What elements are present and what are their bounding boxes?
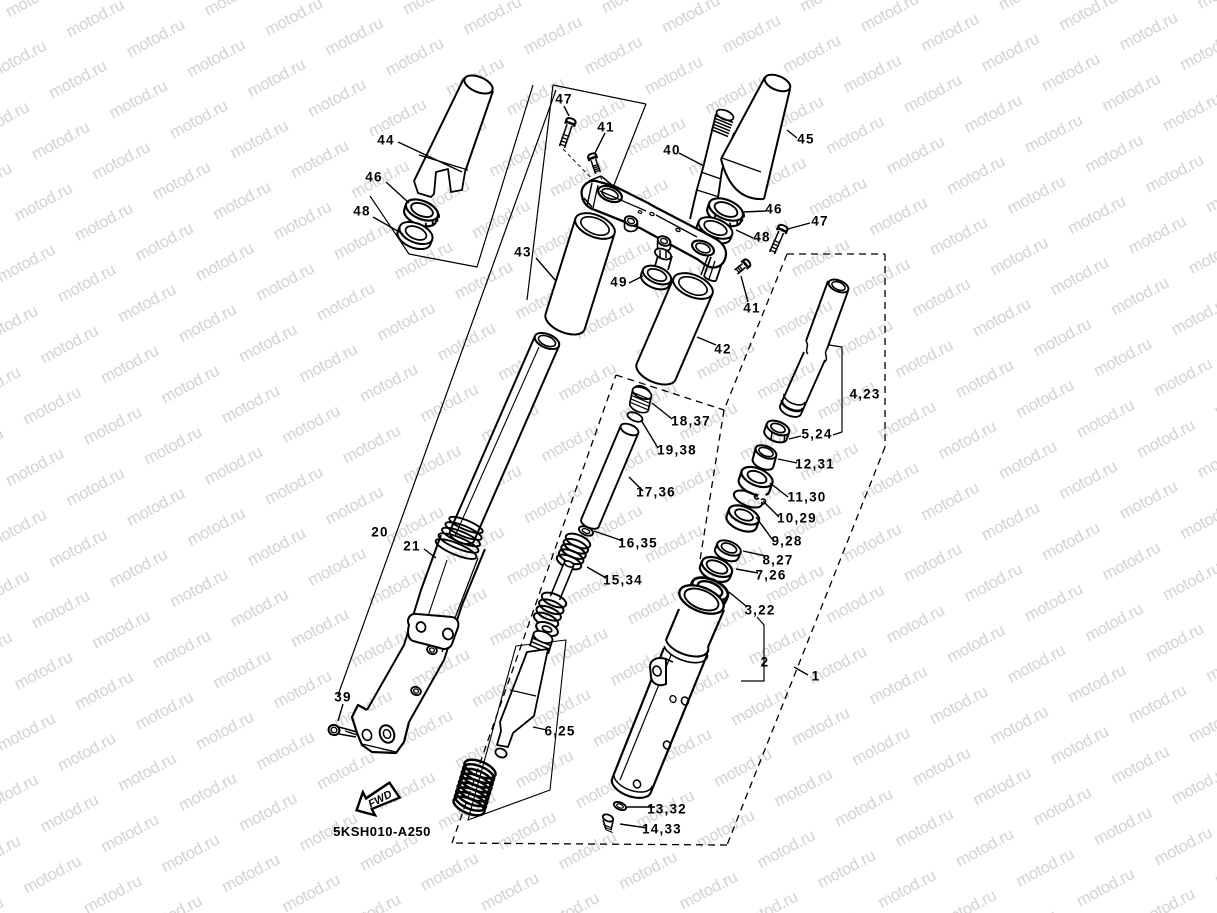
svg-text:47: 47 (555, 92, 572, 107)
svg-text:5,24: 5,24 (801, 427, 832, 442)
svg-text:7,26: 7,26 (755, 568, 786, 583)
svg-text:15,34: 15,34 (603, 573, 643, 588)
svg-text:10,29: 10,29 (777, 511, 817, 526)
svg-text:49: 49 (610, 275, 627, 290)
svg-text:1: 1 (812, 669, 821, 684)
svg-text:44: 44 (377, 133, 394, 148)
svg-text:42: 42 (714, 342, 731, 357)
svg-text:4,23: 4,23 (849, 387, 880, 402)
svg-text:6,25: 6,25 (544, 724, 575, 739)
svg-text:14,33: 14,33 (642, 822, 682, 837)
svg-text:48: 48 (353, 204, 370, 219)
svg-text:2: 2 (761, 655, 770, 670)
svg-text:17,36: 17,36 (636, 485, 676, 500)
svg-text:41: 41 (597, 120, 614, 135)
svg-text:21: 21 (403, 539, 420, 554)
svg-text:12,31: 12,31 (795, 457, 835, 472)
svg-text:3,22: 3,22 (744, 603, 775, 618)
svg-text:46: 46 (765, 202, 782, 217)
svg-text:9,28: 9,28 (771, 534, 802, 549)
svg-text:5KSH010-A250: 5KSH010-A250 (333, 824, 431, 839)
svg-text:39: 39 (334, 690, 351, 705)
svg-text:40: 40 (663, 143, 680, 158)
svg-text:13,32: 13,32 (647, 802, 687, 817)
svg-text:11,30: 11,30 (787, 490, 826, 505)
svg-text:20: 20 (371, 525, 388, 540)
svg-text:45: 45 (797, 132, 814, 147)
svg-text:19,38: 19,38 (657, 443, 697, 458)
svg-text:16,35: 16,35 (618, 536, 658, 551)
svg-text:46: 46 (365, 170, 382, 185)
svg-text:8,27: 8,27 (762, 553, 793, 568)
svg-text:48: 48 (753, 230, 770, 245)
svg-text:41: 41 (743, 301, 760, 316)
svg-text:43: 43 (514, 245, 531, 260)
svg-text:47: 47 (811, 214, 828, 229)
svg-text:18,37: 18,37 (671, 414, 711, 429)
